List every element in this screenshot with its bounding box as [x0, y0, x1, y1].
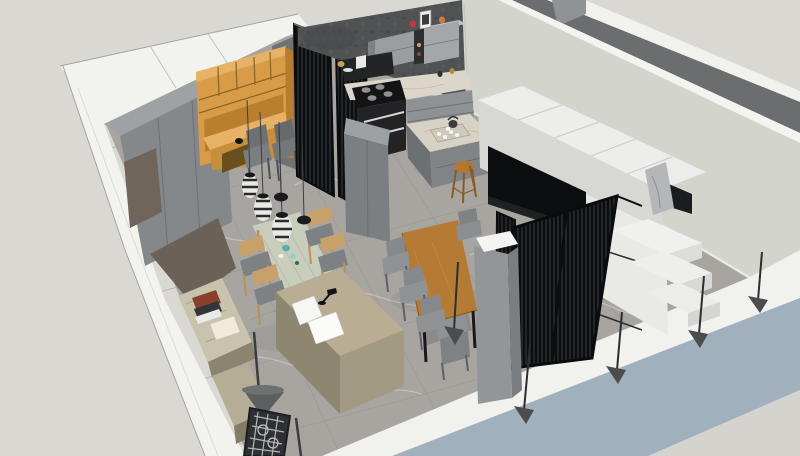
white-dish	[278, 254, 283, 258]
3d-room-render: 3D interior design model view — open-pla…	[0, 0, 800, 456]
floor-lamp-rim	[242, 385, 284, 395]
pendant-cap	[258, 194, 269, 199]
decor-candle	[439, 17, 445, 24]
decor-red-cup	[410, 21, 416, 28]
column-front	[474, 246, 512, 404]
interior-model-canvas: 3D interior design model view — open-pla…	[0, 0, 800, 456]
concrete-shade	[304, 26, 356, 50]
pendant-cap	[276, 212, 288, 218]
counter-bottle	[438, 71, 443, 77]
pendant-dome-black	[274, 193, 288, 202]
hob-burner	[376, 84, 385, 90]
tea-cup	[445, 127, 450, 132]
counter-bottle	[450, 68, 455, 74]
teal-vase	[282, 245, 290, 251]
tea-cup	[436, 132, 441, 137]
niche-decor	[417, 43, 421, 47]
pendant-cap	[245, 173, 255, 178]
tea-kettle	[449, 120, 458, 128]
hob-burner	[384, 91, 393, 97]
desk-sconce	[235, 138, 243, 144]
hob-burner	[362, 87, 371, 93]
pendant-dome-black	[297, 216, 311, 225]
hob-burner	[368, 95, 377, 101]
teal-vase	[295, 261, 299, 265]
picture-frame-inner	[422, 14, 429, 25]
plate-stack	[343, 68, 353, 72]
gold-kettle	[338, 61, 345, 67]
teal-vase	[290, 254, 296, 259]
tea-cup	[442, 135, 447, 140]
niche-decor	[417, 52, 421, 56]
coffee-machine	[356, 55, 366, 69]
tea-cup	[454, 133, 459, 138]
